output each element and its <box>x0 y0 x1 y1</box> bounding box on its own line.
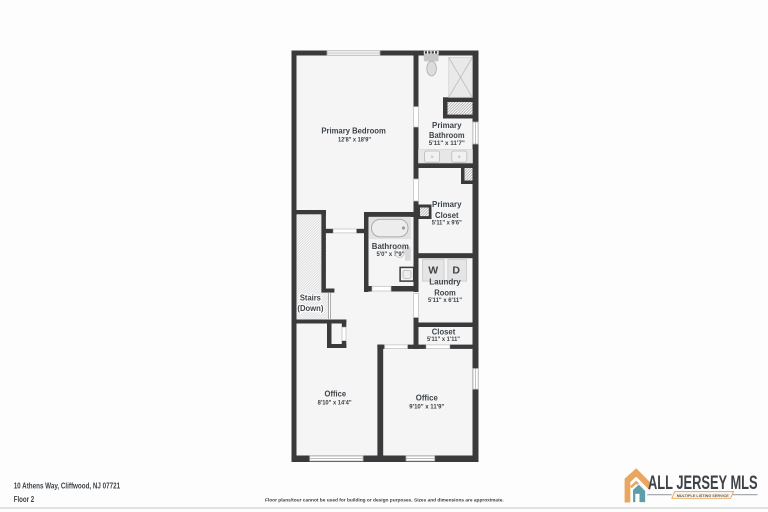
svg-text:8'10" x 14'4": 8'10" x 14'4" <box>318 399 352 406</box>
svg-text:5'0" x 7'9": 5'0" x 7'9" <box>377 251 405 258</box>
svg-text:Office: Office <box>416 393 438 403</box>
svg-text:W: W <box>428 265 438 277</box>
svg-text:5'11" x 1'11": 5'11" x 1'11" <box>427 336 460 343</box>
svg-text:Primary: Primary <box>432 199 462 209</box>
svg-text:Office: Office <box>325 388 347 398</box>
svg-text:Bathroom: Bathroom <box>429 130 465 140</box>
svg-text:Floor 2: Floor 2 <box>14 495 35 504</box>
svg-text:ALL JERSEY MLS: ALL JERSEY MLS <box>648 472 758 494</box>
svg-text:(Down): (Down) <box>297 304 323 313</box>
svg-text:Primary: Primary <box>432 120 462 130</box>
svg-text:MULTIPLE LISTING SERVICE: MULTIPLE LISTING SERVICE <box>677 493 729 498</box>
svg-text:10 Athens Way, Cliffwood, NJ 0: 10 Athens Way, Cliffwood, NJ 07721 <box>14 482 121 491</box>
svg-text:9'10" x 11'9": 9'10" x 11'9" <box>409 403 444 410</box>
svg-text:Floor plans/tour cannot be use: Floor plans/tour cannot be used for buil… <box>265 497 504 503</box>
svg-text:Closet: Closet <box>432 327 456 337</box>
svg-text:Laundry: Laundry <box>429 276 461 286</box>
svg-text:Room: Room <box>434 287 456 297</box>
svg-text:5'11" x 11'7": 5'11" x 11'7" <box>429 140 465 147</box>
svg-text:12'8" x 18'9": 12'8" x 18'9" <box>338 136 371 143</box>
svg-text:Primary Bedroom: Primary Bedroom <box>321 125 386 135</box>
svg-text:D: D <box>452 265 460 277</box>
svg-text:5'11" x 9'6": 5'11" x 9'6" <box>432 219 462 226</box>
svg-text:Stairs: Stairs <box>300 294 322 303</box>
svg-text:5'11" x 6'11": 5'11" x 6'11" <box>428 297 462 304</box>
